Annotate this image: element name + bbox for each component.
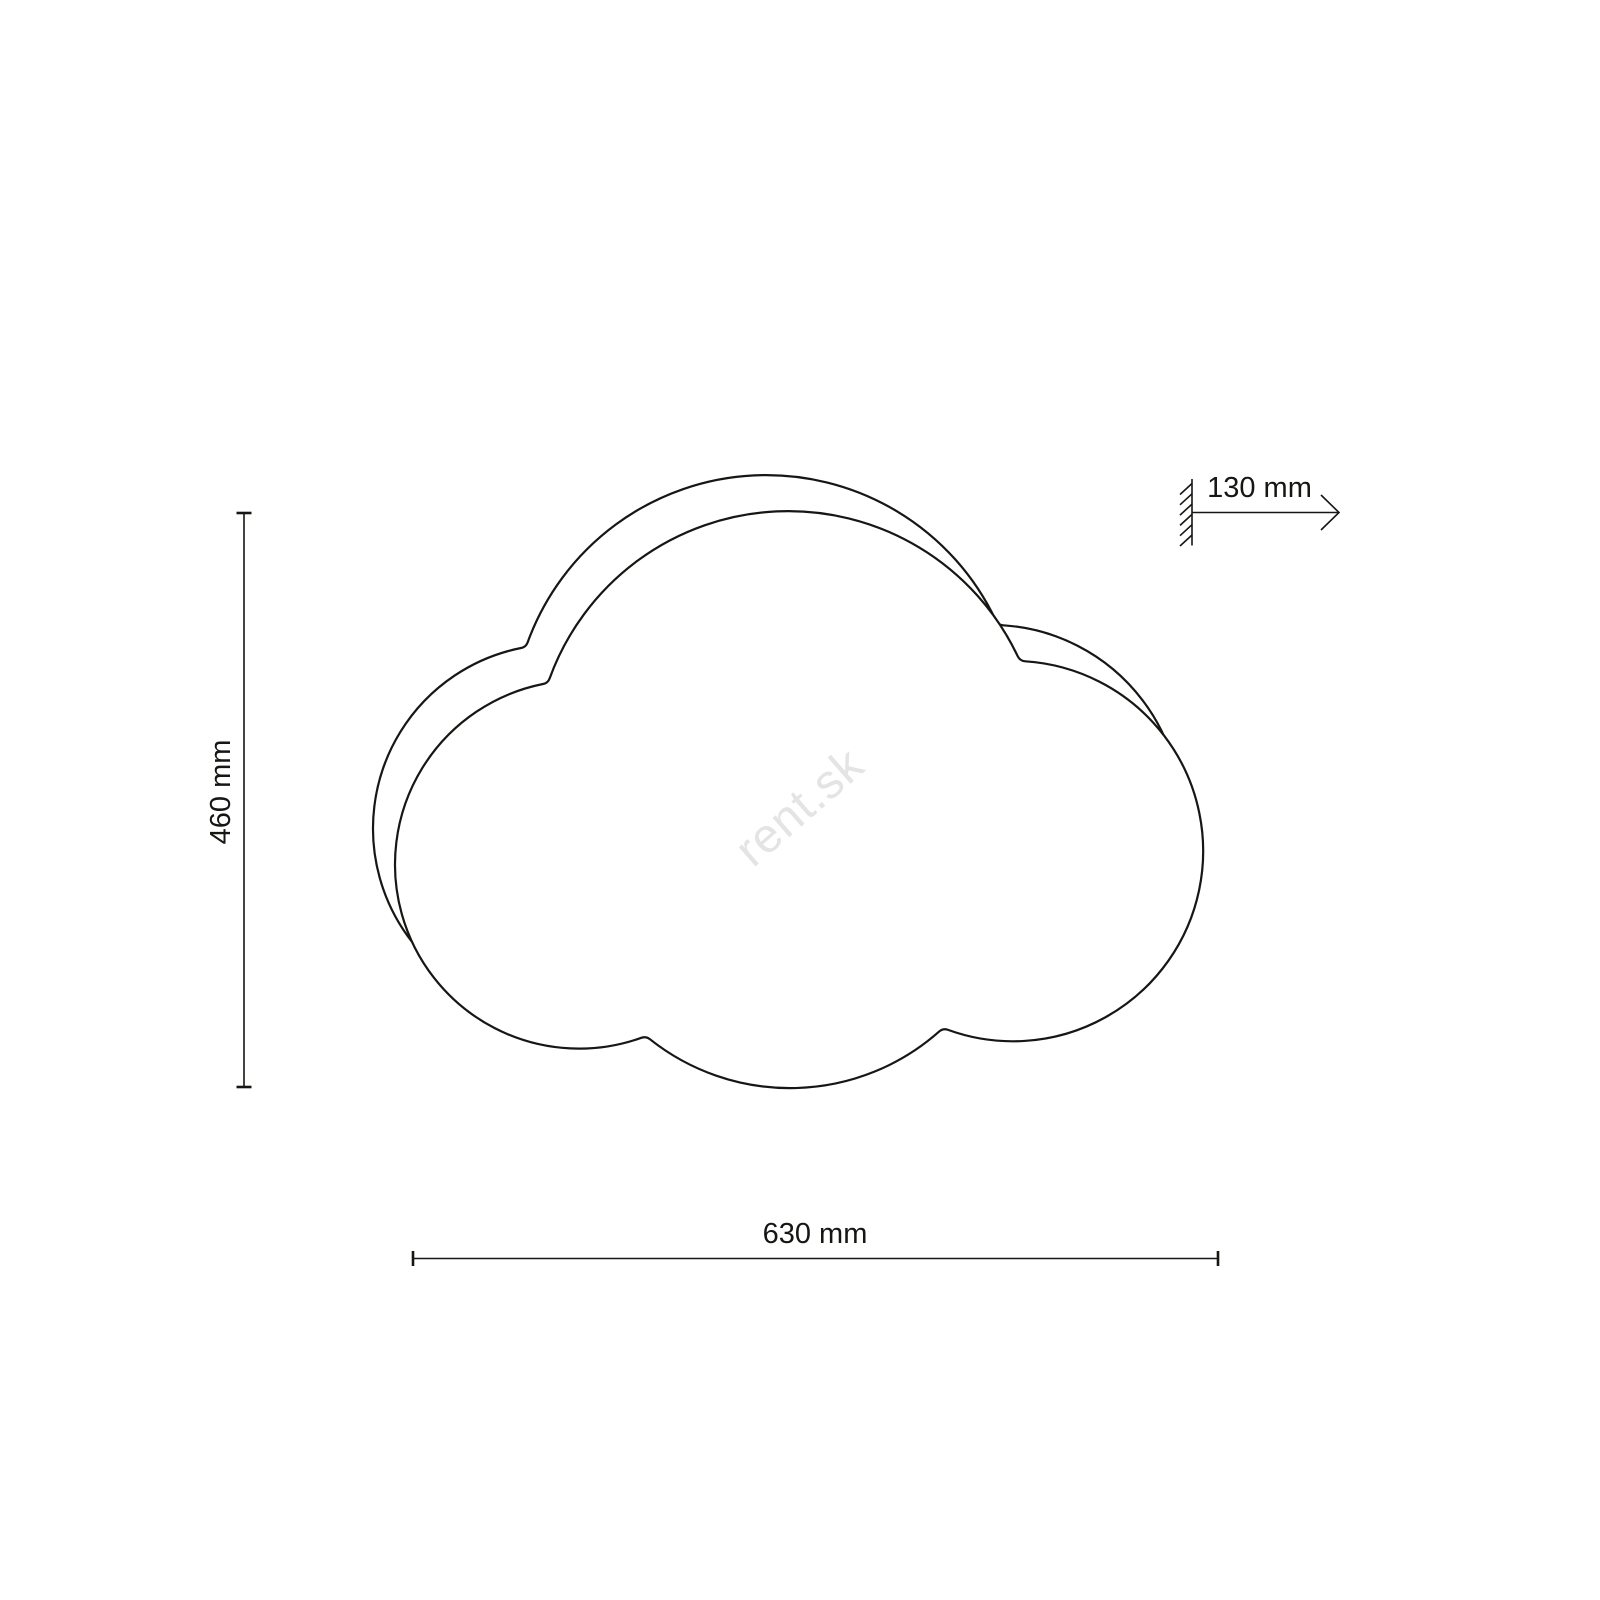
svg-text:460 mm: 460 mm — [205, 740, 237, 845]
svg-text:630 mm: 630 mm — [763, 1218, 868, 1250]
svg-text:130 mm: 130 mm — [1207, 472, 1312, 504]
